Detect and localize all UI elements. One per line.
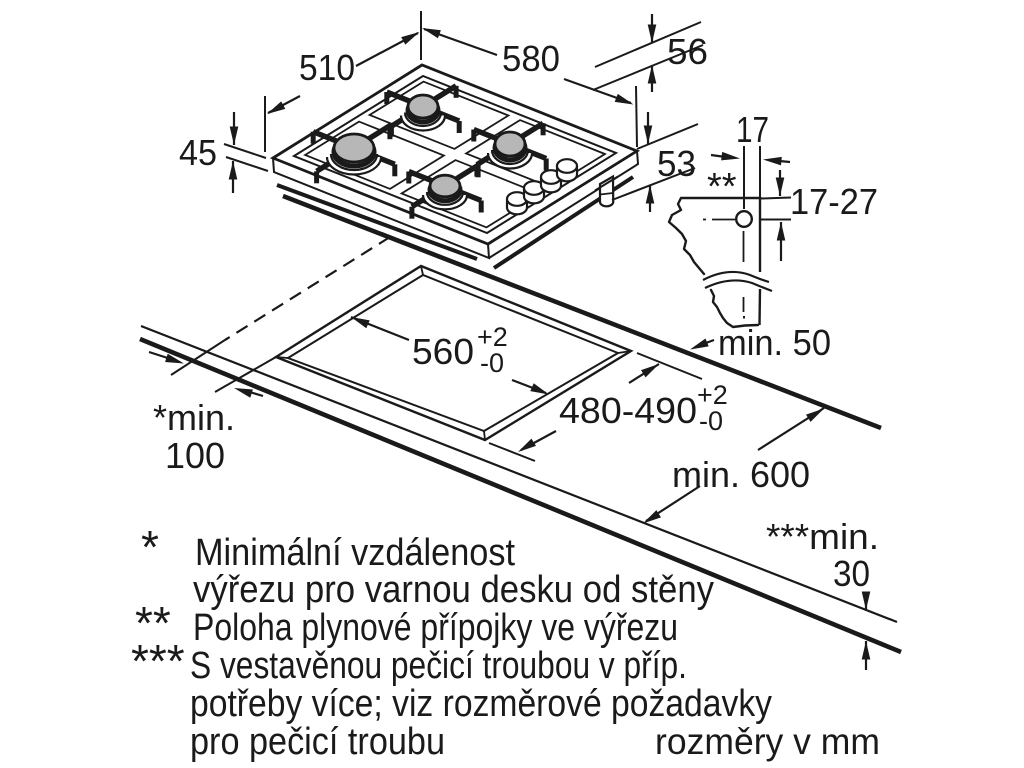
svg-text:17-27: 17-27 — [790, 181, 878, 222]
svg-text:výřezu pro varnou desku od stě: výřezu pro varnou desku od stěny — [193, 569, 714, 611]
svg-text:45: 45 — [179, 132, 217, 173]
svg-text:rozměry v mm: rozměry v mm — [655, 721, 880, 762]
svg-text:min. 600: min. 600 — [672, 454, 810, 495]
svg-text:53: 53 — [657, 143, 696, 184]
svg-text:100: 100 — [165, 435, 225, 476]
svg-text:-0: -0 — [480, 348, 504, 378]
svg-text:***min.: ***min. — [766, 516, 879, 557]
svg-text:580: 580 — [502, 38, 560, 79]
svg-text:S vestavěnou pečicí troubou v: S vestavěnou pečicí troubou v příp. — [190, 645, 687, 687]
svg-text:Poloha plynové přípojky ve výř: Poloha plynové přípojky ve výřezu — [193, 607, 678, 649]
svg-text:Minimální vzdálenost: Minimální vzdálenost — [195, 532, 515, 574]
svg-text:pro pečicí troubu: pro pečicí troubu — [190, 721, 445, 763]
svg-text:*: * — [141, 521, 159, 573]
svg-text:56: 56 — [667, 31, 708, 72]
svg-text:min. 50: min. 50 — [718, 322, 831, 363]
svg-text:480-490: 480-490 — [559, 390, 697, 431]
svg-text:potřeby více; viz rozměrové po: potřeby více; viz rozměrové požadavky — [190, 683, 772, 725]
svg-text:17: 17 — [736, 109, 769, 150]
svg-text:***: *** — [131, 635, 185, 687]
svg-text:-0: -0 — [699, 406, 723, 436]
svg-text:510: 510 — [299, 47, 355, 88]
svg-text:**: ** — [707, 166, 737, 208]
svg-text:560: 560 — [412, 331, 474, 372]
svg-text:*min.: *min. — [153, 397, 235, 438]
svg-text:30: 30 — [833, 553, 870, 594]
